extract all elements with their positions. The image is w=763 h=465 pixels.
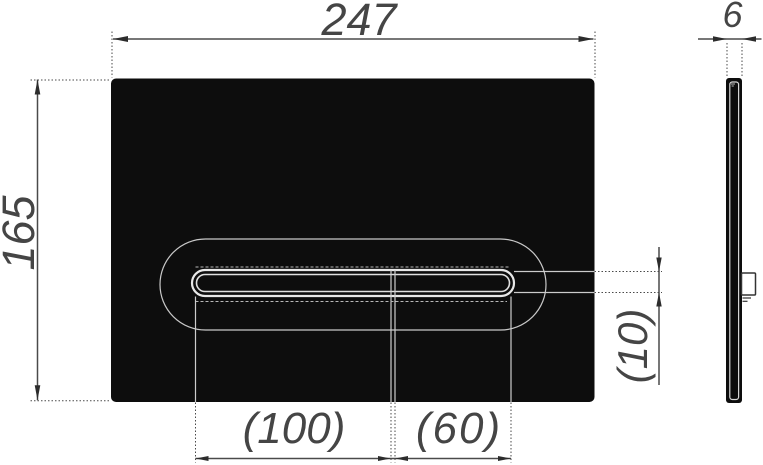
svg-text:165: 165 xyxy=(0,194,44,270)
svg-text:(100): (100) xyxy=(243,404,346,453)
svg-text:(60): (60) xyxy=(416,404,502,453)
svg-text:6: 6 xyxy=(722,0,743,35)
svg-text:(10): (10) xyxy=(609,309,656,384)
svg-text:247: 247 xyxy=(320,0,398,45)
